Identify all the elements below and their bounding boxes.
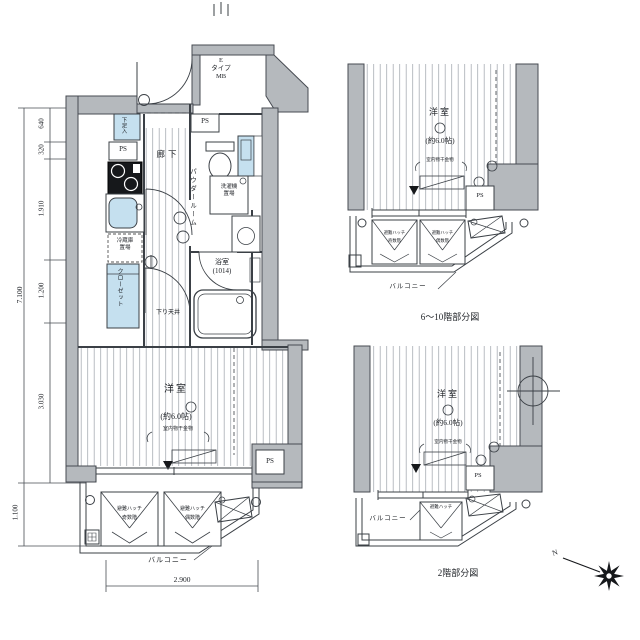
dim-320: 320 — [37, 130, 46, 170]
washbasin-cabinet — [238, 136, 254, 176]
upper-laundry-hook-label: 室内物干金物 — [414, 157, 466, 163]
dim-total-height: 7.100 — [15, 275, 25, 315]
shoe-cabinet-box — [114, 114, 140, 140]
lower-room-size-label: (約6.0帖) — [418, 418, 478, 428]
upper-hatch-odd-label: 避難ハッチ 奇数階 — [373, 229, 416, 244]
lower-room-label: 洋室 — [418, 389, 478, 401]
floor-plan-drawing — [0, 0, 640, 640]
dim-width-2900: 2.900 — [152, 575, 212, 585]
washer-space-label: 洗濯機 置場 — [212, 184, 246, 198]
closet-label: クローゼット — [116, 268, 122, 307]
lower-ps-label: PS — [464, 472, 492, 480]
drain-box — [349, 255, 361, 267]
upper-balcony-label: バルコニー — [380, 283, 436, 291]
balcony-label: バルコニー — [138, 556, 198, 565]
hallway-label: 廊下 — [146, 149, 190, 160]
upper-hatch-even-label: 避難ハッチ 偶数階 — [421, 229, 464, 244]
main-floor-plan — [18, 2, 308, 592]
ps-label-bottom: PS — [256, 457, 284, 466]
floor-plan-page: E タイプ MB PS PS 下足入 廊下 パウダールーム 洗濯機 置場 冷蔵庫… — [0, 0, 640, 640]
fridge-space-label: 冷蔵庫 置場 — [108, 238, 142, 252]
window — [372, 208, 466, 218]
powder-room-label: パウダールーム — [188, 168, 195, 228]
room-size-label: (約6.0帖) — [146, 412, 206, 422]
balcony-leader-line — [438, 272, 456, 289]
compass-icon — [563, 558, 624, 591]
dim-3030: 3.030 — [37, 382, 46, 422]
lower-hatch-label: 避難ハッチ — [420, 504, 462, 510]
lower-caption: 2階部分図 — [408, 568, 508, 580]
balcony — [349, 216, 528, 289]
cut-marks — [214, 2, 228, 16]
hatch-odd-label: 避難ハッチ 奇数階 — [103, 505, 156, 523]
upper-room-size-label: (約6.0帖) — [410, 136, 470, 146]
shoe-cabinet-label: 下足入 — [120, 117, 126, 134]
sink — [109, 198, 137, 228]
upper-room-label: 洋室 — [410, 107, 470, 119]
upper-partial-plan — [348, 64, 538, 289]
ac-outdoor-unit — [466, 494, 503, 516]
bathroom-label: 浴室 (1014) — [196, 258, 248, 276]
laundry-hook-label: 室内物干金物 — [150, 427, 206, 434]
hatch-even-label: 避難ハッチ 偶数階 — [166, 505, 219, 523]
ps-label-top: PS — [191, 117, 219, 126]
powder-room-fixtures — [191, 114, 262, 252]
entrance-mb-label: E タイプ MB — [204, 57, 238, 80]
lower-laundry-hook-label: 室内物干金物 — [422, 439, 474, 445]
ac-outdoor-unit — [468, 216, 505, 238]
lowered-ceiling-label: 下り天井 — [148, 310, 188, 318]
dim-1100: 1.100 — [11, 493, 20, 533]
ps-label-kitchen: PS — [109, 145, 137, 154]
room-label: 洋室 — [146, 383, 206, 396]
lower-balcony-label: バルコニー — [360, 515, 416, 523]
toilet-bowl — [209, 153, 231, 179]
closet-box — [107, 264, 139, 328]
dim-1200: 1.200 — [37, 271, 46, 311]
upper-ps-label: PS — [466, 192, 494, 200]
washbasin-counter — [232, 216, 260, 252]
upper-caption: 6〜10階部分図 — [390, 312, 510, 324]
dim-1910: 1.910 — [37, 189, 46, 229]
window — [378, 490, 468, 500]
window — [96, 466, 252, 482]
toilet-tank — [206, 142, 234, 151]
